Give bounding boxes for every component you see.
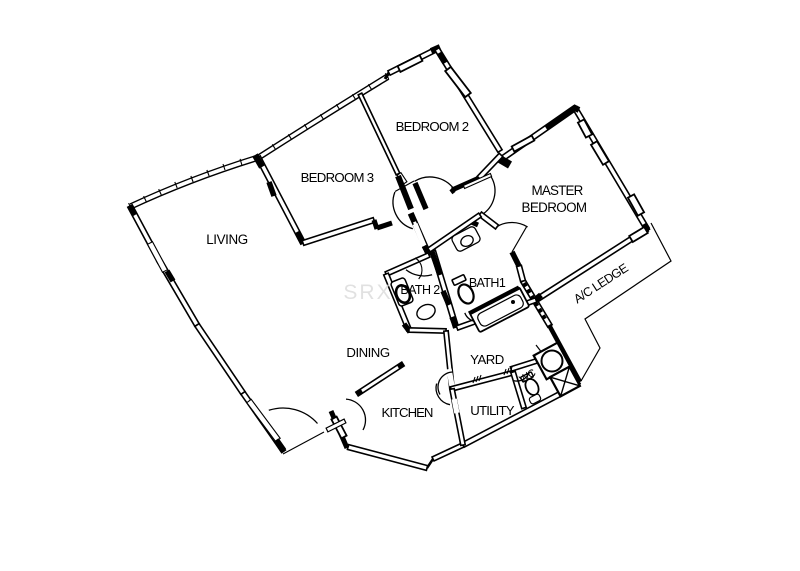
svg-text:BATH 2: BATH 2 [400,283,440,297]
svg-text:BEDROOM 3: BEDROOM 3 [301,170,374,185]
svg-text:SRX: SRX [343,281,392,304]
svg-text:KITCHEN: KITCHEN [382,405,433,420]
svg-text:DINING: DINING [346,345,389,360]
svg-text:MASTER: MASTER [532,183,584,198]
svg-text:BEDROOM: BEDROOM [522,200,587,215]
svg-text:LIVING: LIVING [206,232,248,247]
svg-text:BEDROOM 2: BEDROOM 2 [396,119,469,134]
svg-text:UTILITY: UTILITY [470,403,514,418]
svg-text:BATH1: BATH1 [469,276,506,290]
svg-text:YARD: YARD [470,352,504,367]
